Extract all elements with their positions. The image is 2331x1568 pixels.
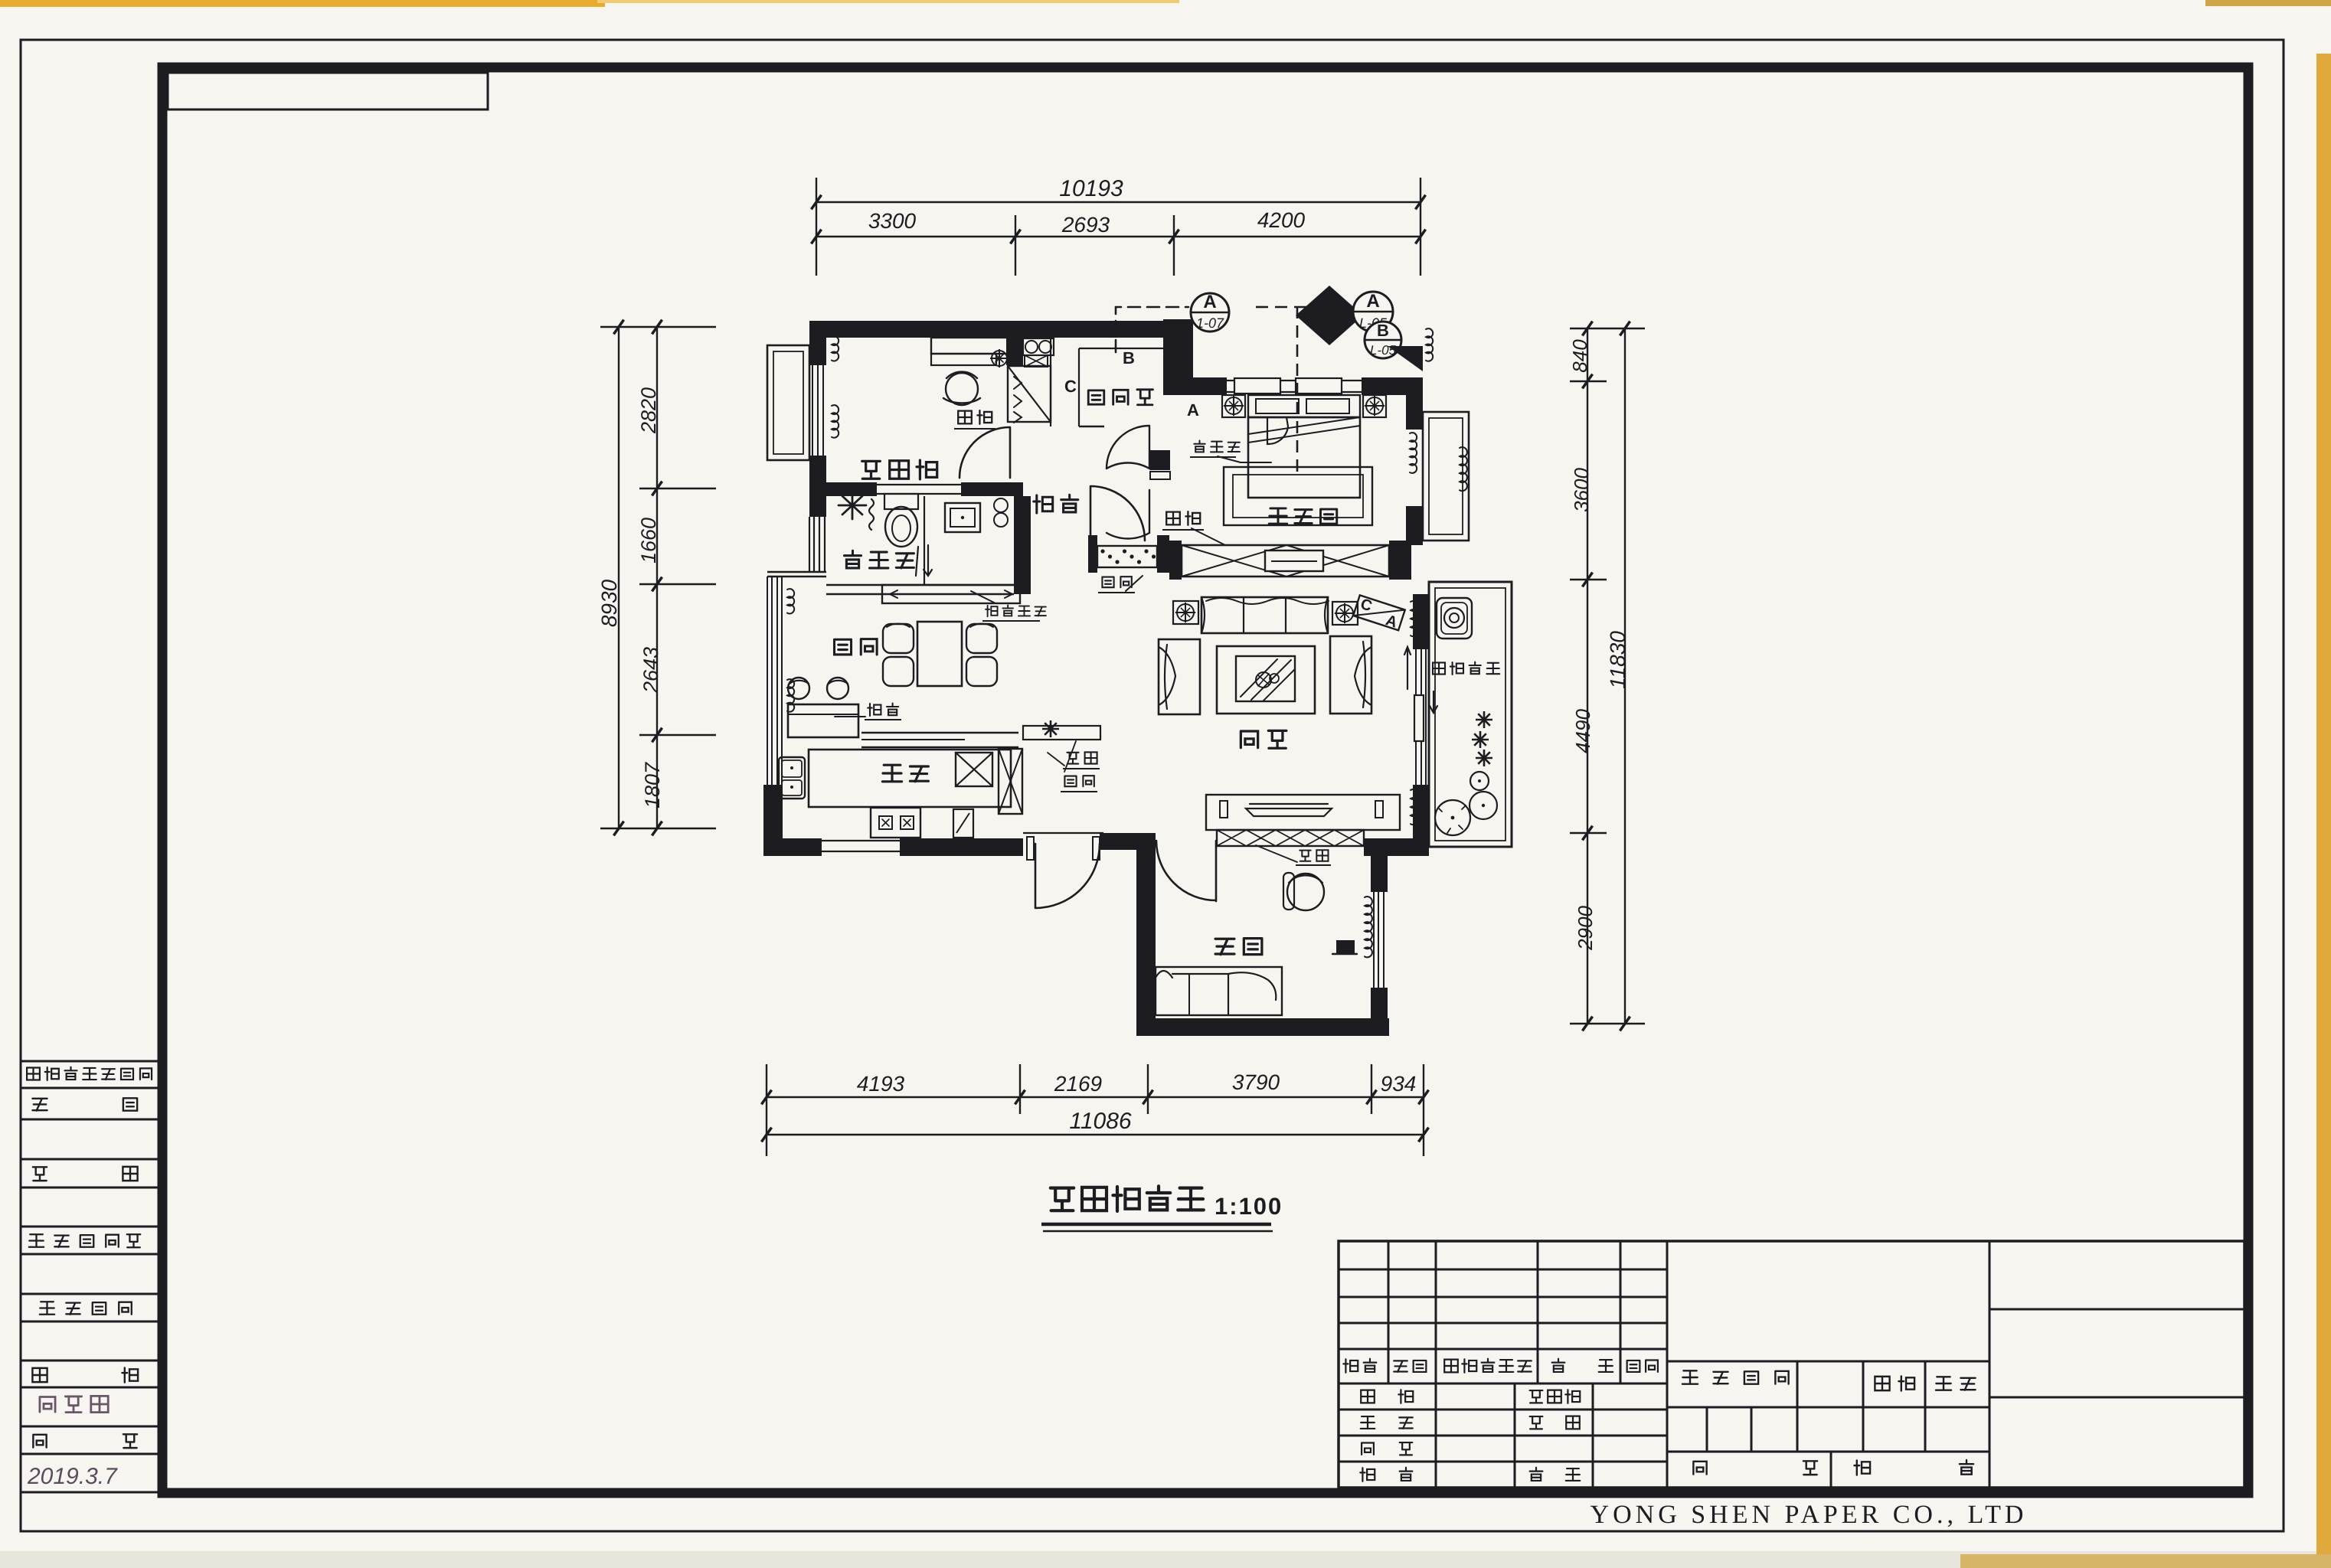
- svg-text:11086: 11086: [1069, 1109, 1132, 1134]
- svg-text:4490: 4490: [1571, 709, 1594, 753]
- svg-text:YONG SHEN PAPER CO., LTD: YONG SHEN PAPER CO., LTD: [1591, 1501, 2028, 1529]
- svg-text:4200: 4200: [1257, 208, 1306, 232]
- svg-text:8930: 8930: [597, 579, 621, 627]
- svg-text:2019.3.7: 2019.3.7: [27, 1464, 118, 1489]
- svg-text:L-05: L-05: [1370, 343, 1397, 358]
- svg-text:A: A: [1203, 292, 1216, 312]
- svg-text:2643: 2643: [639, 647, 662, 694]
- svg-text:A: A: [1187, 400, 1199, 420]
- svg-text:B: B: [1123, 348, 1135, 367]
- svg-text:2900: 2900: [1574, 906, 1597, 951]
- svg-text:A: A: [1366, 291, 1379, 312]
- svg-text:1807: 1807: [641, 762, 664, 808]
- svg-text:B: B: [1377, 321, 1389, 340]
- svg-text:1660: 1660: [637, 518, 660, 563]
- svg-text:3600: 3600: [1570, 468, 1593, 512]
- svg-text:1-07: 1-07: [1196, 315, 1224, 331]
- svg-text:934: 934: [1381, 1072, 1417, 1096]
- svg-text:2820: 2820: [637, 387, 660, 434]
- svg-text:3790: 3790: [1232, 1070, 1280, 1094]
- svg-text:11830: 11830: [1606, 631, 1630, 689]
- svg-text:4193: 4193: [857, 1072, 905, 1096]
- svg-text:2693: 2693: [1061, 213, 1110, 237]
- svg-text:2169: 2169: [1054, 1072, 1102, 1096]
- svg-text:840: 840: [1568, 339, 1591, 373]
- svg-text:10193: 10193: [1059, 176, 1123, 201]
- svg-text:1:100: 1:100: [1215, 1193, 1283, 1220]
- svg-text:C: C: [1064, 377, 1077, 396]
- svg-text:3300: 3300: [868, 209, 917, 233]
